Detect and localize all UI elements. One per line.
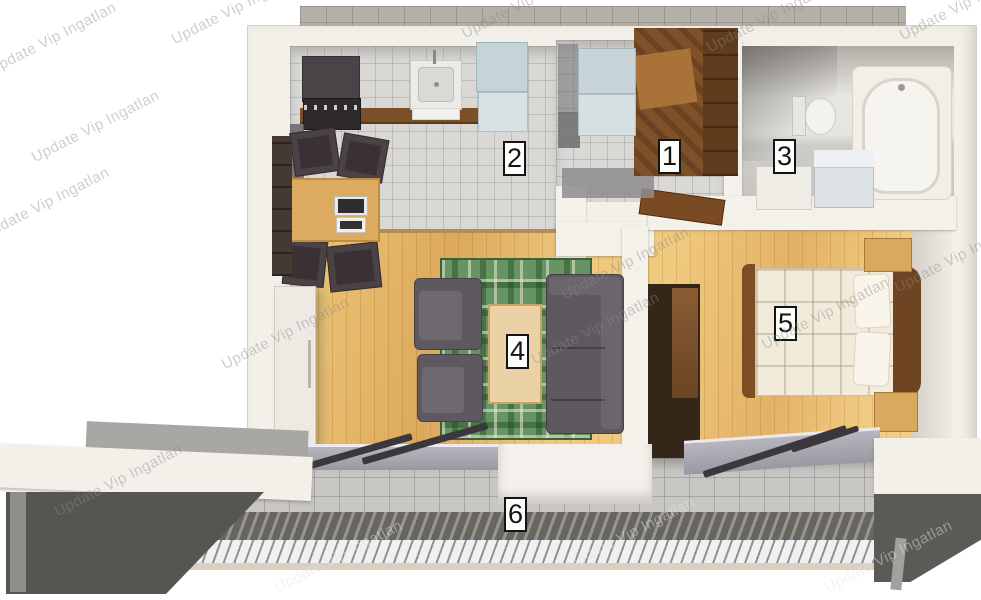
right-roof-slab <box>874 438 981 496</box>
nightstand <box>874 392 918 432</box>
toilet <box>805 98 836 135</box>
entrance-wardrobe-front <box>633 48 698 110</box>
stove-burner-panel <box>303 98 361 130</box>
sink-drain <box>434 82 439 87</box>
toilet-tank <box>792 96 806 136</box>
sink-ledge <box>412 108 460 120</box>
refrigerator <box>476 42 528 92</box>
room-label-entrance-hall: 1 <box>658 139 681 174</box>
bookshelf <box>272 136 292 276</box>
kitchen-cabinet <box>478 92 528 132</box>
lower-terrace-edge <box>10 492 26 592</box>
wardrobe-handle <box>308 340 311 388</box>
laptop-screen <box>338 199 364 213</box>
dining-chair <box>289 127 341 177</box>
dining-chair <box>337 132 390 183</box>
watermark-text: Update Vip Ingatlan <box>0 164 112 243</box>
armchair <box>417 354 483 422</box>
shower-drain <box>898 84 905 91</box>
bed-footboard <box>742 264 755 398</box>
room-label-terrace: 6 <box>504 497 527 532</box>
wall-gap-shadow <box>558 44 578 114</box>
entrance-cabinet <box>578 48 636 94</box>
nightstand <box>864 238 912 272</box>
room-label-kitchen-hallway: 2 <box>503 141 526 176</box>
watermark-text: Update Vip Ingatlan <box>29 87 162 166</box>
armchair <box>414 278 482 350</box>
laptop-keyboard <box>340 221 362 229</box>
floor-shadow <box>558 112 580 148</box>
washing-machine-top <box>814 150 874 168</box>
floorplan-scene: 1 2 3 4 5 6 Update Vip Ingatlan Update V… <box>0 0 981 600</box>
sink-faucet <box>433 50 436 64</box>
entrance-cabinet-lower <box>578 94 636 136</box>
room-label-bathroom: 3 <box>773 139 796 174</box>
terrace-railing-deck <box>116 540 884 570</box>
pillow <box>853 331 892 387</box>
stove <box>302 56 360 102</box>
watermark-text: Update Vip Ingatlan <box>0 0 119 78</box>
bedroom-wardrobe-door <box>672 288 698 398</box>
bottom-wall-center <box>498 444 652 504</box>
dining-chair <box>326 241 383 292</box>
room-label-living-room: 4 <box>506 334 529 369</box>
